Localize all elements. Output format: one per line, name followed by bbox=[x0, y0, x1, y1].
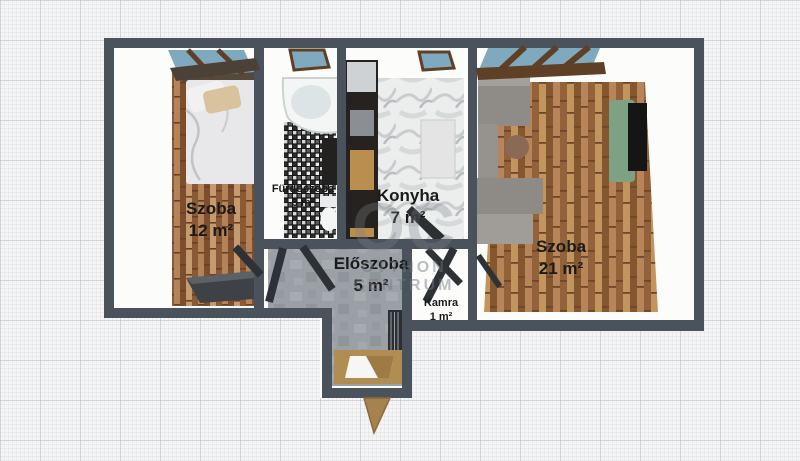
room-area: 1 m² bbox=[424, 311, 458, 325]
room-label-szoba-21: Szoba 21 m² bbox=[536, 236, 586, 281]
window-konyha bbox=[419, 52, 454, 70]
room-name: Szoba bbox=[536, 236, 586, 258]
room-label-kamra: Kamra 1 m² bbox=[424, 297, 458, 325]
room-area: 21 m² bbox=[536, 258, 586, 280]
window-furdoszoba bbox=[290, 50, 329, 70]
room-area: 3 m² bbox=[272, 197, 334, 211]
room-name: Fürdőszoba bbox=[272, 183, 334, 197]
room-name: Kamra bbox=[424, 297, 458, 311]
kitchen-cabinets bbox=[346, 60, 378, 239]
room-label-eloszoba: Előszoba 5 m² bbox=[334, 253, 409, 298]
rug bbox=[505, 135, 529, 159]
kitchen-table bbox=[421, 120, 455, 178]
room-area: 12 m² bbox=[186, 220, 236, 242]
room-name: Konyha bbox=[377, 185, 439, 207]
room-area: 5 m² bbox=[334, 275, 409, 297]
room-label-furdoszoba: Fürdőszoba 3 m² bbox=[272, 183, 334, 211]
entrance-mat bbox=[334, 350, 402, 384]
radiator bbox=[388, 310, 402, 352]
floorplan-canvas: Szoba 12 m² Fürdőszoba 3 m² Konyha 7 m² … bbox=[0, 0, 800, 461]
room-label-konyha: Konyha 7 m² bbox=[377, 185, 439, 230]
floorplan-drawing bbox=[0, 0, 800, 461]
room-area: 7 m² bbox=[377, 207, 439, 229]
entrance-door-leaf bbox=[364, 398, 390, 433]
room-name: Előszoba bbox=[334, 253, 409, 275]
room-name: Szoba bbox=[186, 198, 236, 220]
room-label-szoba-12: Szoba 12 m² bbox=[186, 198, 236, 243]
tv bbox=[628, 103, 647, 171]
vanity-cabinet bbox=[322, 138, 339, 185]
